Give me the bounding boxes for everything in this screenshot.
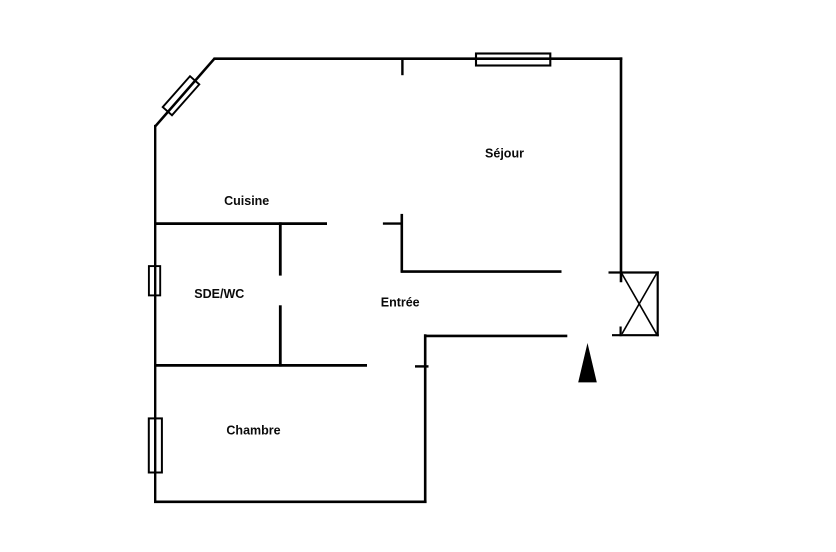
svg-text:Entrée: Entrée <box>381 295 420 309</box>
svg-text:Chambre: Chambre <box>226 423 280 437</box>
svg-text:SDE/WC: SDE/WC <box>194 287 244 301</box>
svg-text:Cuisine: Cuisine <box>224 194 269 208</box>
svg-text:Séjour: Séjour <box>485 147 524 161</box>
